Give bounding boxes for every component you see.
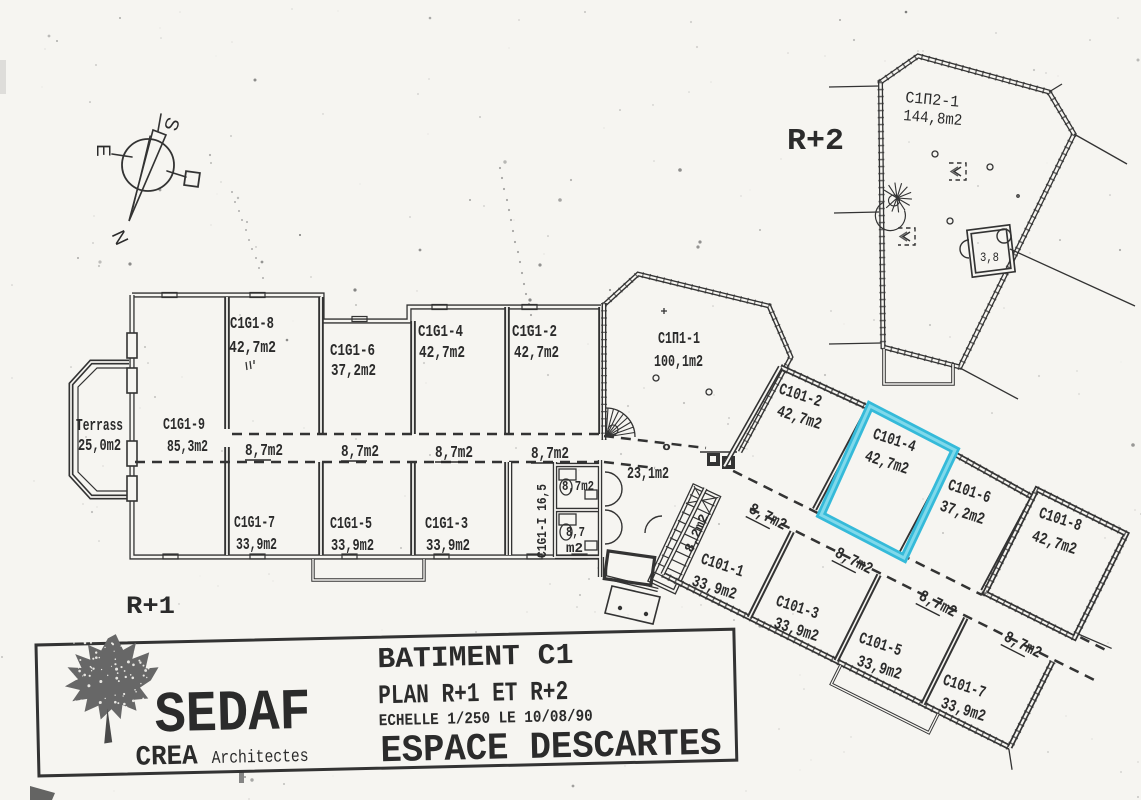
svg-text:CREA: CREA xyxy=(135,741,198,773)
svg-text:C1G1-7: C1G1-7 xyxy=(234,513,275,532)
svg-text:25,0m2: 25,0m2 xyxy=(78,436,121,455)
svg-text:8,7: 8,7 xyxy=(566,526,585,541)
svg-text:C1G1-4: C1G1-4 xyxy=(418,322,463,341)
svg-text:42,7m2: 42,7m2 xyxy=(229,338,276,357)
svg-text:33,9m2: 33,9m2 xyxy=(236,535,277,554)
svg-text:C1G1-5: C1G1-5 xyxy=(330,514,372,533)
svg-text:8,7m2: 8,7m2 xyxy=(435,443,473,462)
svg-text:C1G1-6: C1G1-6 xyxy=(330,341,375,360)
svg-text:C1Π1-1: C1Π1-1 xyxy=(658,329,700,348)
svg-text:SEDAF: SEDAF xyxy=(154,681,311,750)
svg-text:100,1m2: 100,1m2 xyxy=(654,352,703,371)
svg-text:C1G1-3: C1G1-3 xyxy=(425,514,468,533)
svg-text:R+1: R+1 xyxy=(126,592,175,621)
svg-text:BATIMENT C1: BATIMENT C1 xyxy=(377,639,574,676)
svg-text:R+2: R+2 xyxy=(787,124,844,159)
svg-text:C1G1-2: C1G1-2 xyxy=(512,322,557,341)
svg-text:8,7m2: 8,7m2 xyxy=(562,480,594,495)
svg-text:C1G1-9: C1G1-9 xyxy=(163,415,205,434)
svg-text:Architectes: Architectes xyxy=(211,747,308,769)
svg-text:3,8: 3,8 xyxy=(980,250,999,265)
svg-text:Terrass: Terrass xyxy=(76,416,123,435)
svg-text:C1G1-8: C1G1-8 xyxy=(230,314,274,333)
svg-text:ESPACE DESCARTES: ESPACE DESCARTES xyxy=(380,722,722,773)
svg-text:C1G1-I 16,5: C1G1-I 16,5 xyxy=(535,484,551,558)
svg-text:8,7m2: 8,7m2 xyxy=(245,441,283,460)
svg-text:33,9m2: 33,9m2 xyxy=(331,536,374,555)
svg-text:8,7m2: 8,7m2 xyxy=(341,442,379,461)
svg-text:23,1m2: 23,1m2 xyxy=(627,464,669,483)
svg-text:85,3m2: 85,3m2 xyxy=(167,437,208,456)
svg-text:8,7m2: 8,7m2 xyxy=(531,444,569,463)
svg-text:37,2m2: 37,2m2 xyxy=(331,361,376,380)
svg-text:42,7m2: 42,7m2 xyxy=(419,343,465,362)
svg-text:42,7m2: 42,7m2 xyxy=(514,343,559,362)
svg-text:E: E xyxy=(92,144,113,157)
svg-text:33,9m2: 33,9m2 xyxy=(426,536,470,555)
svg-text:m2: m2 xyxy=(566,542,583,557)
